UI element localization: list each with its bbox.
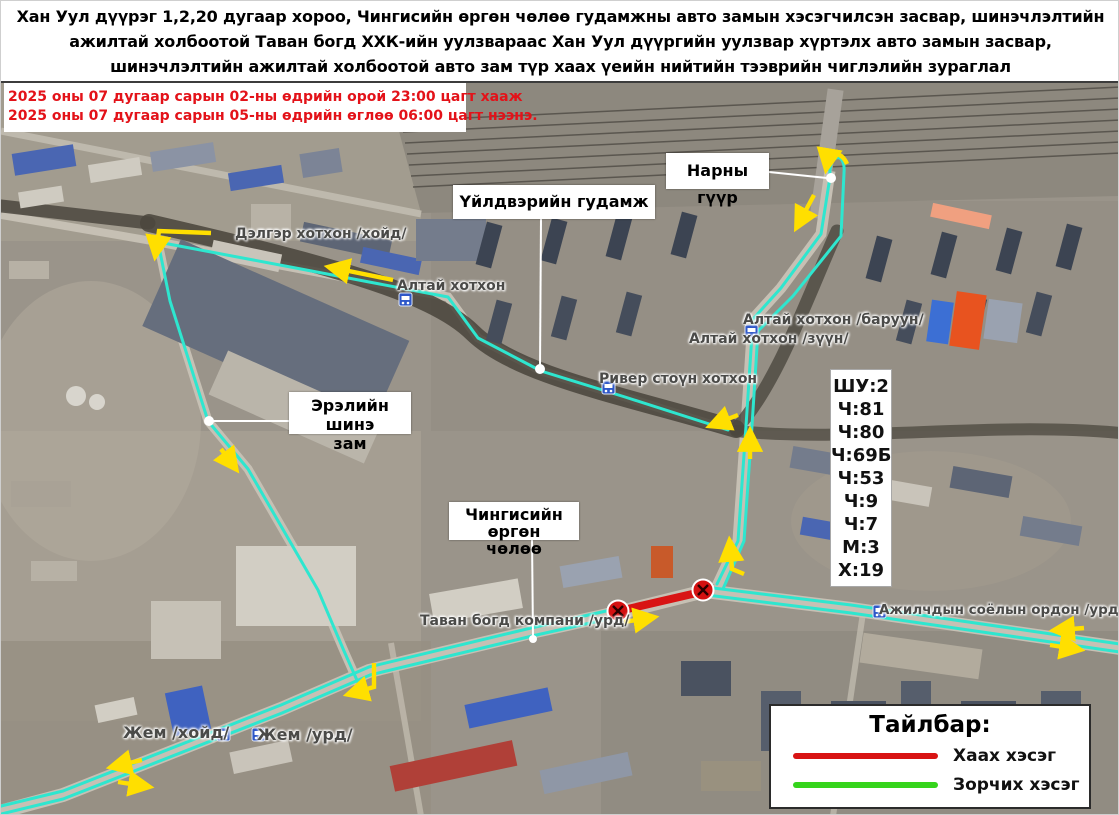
bus-route: Ч:80: [831, 421, 891, 444]
closed-section-line: [793, 753, 938, 759]
notice-line-1: 2025 оны 07 дугаар сарын 02-ны өдрийн ор…: [8, 88, 462, 107]
label-jem-urd: Жем /урд/: [257, 725, 353, 744]
label-altai-khotkhon-zuun: Алтай хотхон /зүүн/: [689, 331, 849, 347]
callout-chinggis-line-1: Чингисийн өргөн: [455, 506, 573, 540]
bus-route: Ч:9: [831, 490, 891, 513]
bus-route: М:3: [831, 536, 891, 559]
title-line-1: Хан Уул дүүрэг 1,2,20 дугаар хороо, Чинг…: [1, 4, 1119, 29]
no-entry-icon: [693, 580, 714, 601]
label-delger-khotkhon: Дэлгэр хотхон /хойд/: [235, 226, 406, 242]
callout-chinggis-urgun-chuluu: Чингисийн өргөн чөлөө: [449, 502, 579, 540]
bus-stop-icon: [399, 293, 412, 306]
legend-row-open: Зорчих хэсэг: [771, 775, 1089, 795]
callout-chinggis-line-2: чөлөө: [455, 540, 573, 557]
bus-route: Ч:53: [831, 467, 891, 490]
arrow-west-icon: [1059, 628, 1084, 630]
notice-line-2: 2025 оны 07 дугаар сарын 05-ны өдрийн өг…: [8, 107, 462, 126]
callout-uildveriin-gudamj: Үйлдвэрийн гудамж: [453, 185, 655, 219]
label-ajilchdyn-soyolyn-ordon: Ажилчдын соёлын ордон /урд/: [879, 602, 1119, 618]
label-tavan-bogd-company: Таван богд компани /урд/: [420, 613, 629, 629]
label-river-stone-khotkhon: Ривер стоүн хотхон: [599, 371, 757, 387]
label-altai-khotkhon: Алтай хотхон: [397, 278, 505, 294]
legend-row-closed: Хаах хэсэг: [771, 746, 1089, 766]
label-jem-khoid: Жем /хойд/: [123, 723, 229, 742]
callout-ereliin-line-2: зам: [295, 434, 405, 453]
poster-header: Хан Уул дүүрэг 1,2,20 дугаар хороо, Чинг…: [1, 1, 1119, 83]
legend-closed-label: Хаах хэсэг: [953, 746, 1056, 766]
bus-routes-box: ШУ:2 Ч:81 Ч:80 Ч:69Б Ч:53 Ч:9 Ч:7 М:3 Х:…: [830, 369, 892, 587]
bus-route: Ч:69Б: [831, 444, 891, 467]
title-line-2: ажилтай холбоотой Таван богд ХХК-ийн уул…: [1, 29, 1119, 54]
legend-title: Тайлбар:: [771, 712, 1089, 738]
callout-ereliin-shine-zam: Эрэлийн шинэ зам: [289, 392, 411, 434]
bus-route: Ч:7: [831, 513, 891, 536]
bus-route: ШУ:2: [831, 375, 891, 398]
callout-ereliin-line-1: Эрэлийн шинэ: [295, 396, 405, 434]
road-closure-map-poster: Хан Уул дүүрэг 1,2,20 дугаар хороо, Чинг…: [0, 0, 1119, 815]
callout-narny-guur: Нарны гүүр: [666, 153, 769, 189]
open-section-line: [793, 782, 938, 788]
bus-route: Ч:81: [831, 398, 891, 421]
title-line-3: шинэчлэлтийн ажилтай холбоотой авто зам …: [1, 54, 1119, 79]
bus-route: Х:19: [831, 559, 891, 582]
label-altai-khotkhon-baruun: Алтай хотхон /баруун/: [743, 312, 924, 328]
legend-box: Тайлбар: Хаах хэсэг Зорчих хэсэг: [769, 704, 1091, 809]
closure-notice: 2025 оны 07 дугаар сарын 02-ны өдрийн ор…: [4, 83, 466, 132]
legend-open-label: Зорчих хэсэг: [953, 775, 1079, 795]
